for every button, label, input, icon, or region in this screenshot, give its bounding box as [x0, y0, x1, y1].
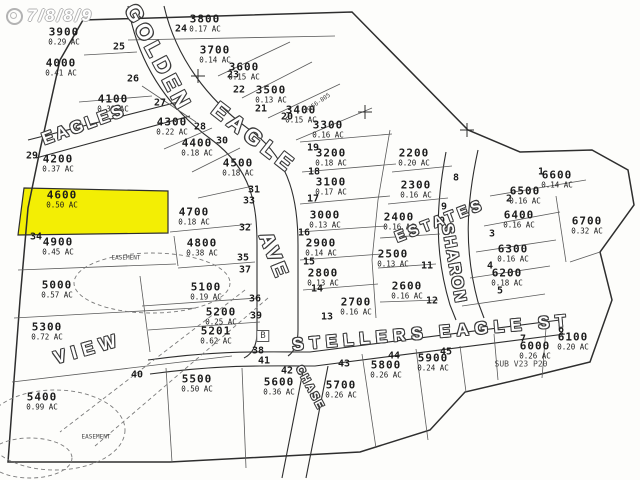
lot-5500-label: 55000.50 AC [181, 373, 213, 392]
lot-2200-label: 22000.20 AC [398, 147, 430, 166]
lot-acreage: 0.14 AC [199, 56, 231, 64]
lot-index-31: 31 [248, 185, 260, 196]
lot-acreage: 0.16 AC [400, 191, 432, 199]
lot-3200-label: 32000.18 AC [315, 147, 347, 166]
lot-index-5: 5 [497, 286, 503, 297]
lot-5800-label: 58000.26 AC [370, 359, 402, 378]
lot-number: 4400 [181, 137, 213, 149]
lot-number: 2500 [377, 248, 409, 260]
lot-number: 6600 [541, 169, 573, 181]
lot-index-25: 25 [113, 42, 125, 53]
lot-4300-label: 43000.22 AC [156, 116, 188, 135]
lot-number: 4900 [42, 236, 74, 248]
lot-number: 6300 [497, 243, 529, 255]
lot-2300-label: 23000.16 AC [400, 179, 432, 198]
lot-3000-label: 30000.13 AC [309, 209, 341, 228]
lot-acreage: 0.17 AC [189, 25, 221, 33]
lot-5000-label: 50000.57 AC [41, 279, 73, 298]
lot-acreage: 0.13 AC [309, 221, 341, 229]
lot-acreage: 0.18 AC [178, 218, 210, 226]
lot-acreage: 0.37 AC [42, 165, 74, 173]
lot-index-41: 41 [258, 356, 270, 367]
lot-index-3: 3 [489, 229, 495, 240]
lot-index-42: 42 [281, 366, 293, 377]
lot-index-39: 39 [250, 311, 262, 322]
lot-index-24: 24 [175, 24, 187, 35]
lot-acreage: 0.50 AC [181, 385, 213, 393]
lot-acreage: 0.57 AC [41, 291, 73, 299]
lot-index-15: 15 [303, 257, 315, 268]
lot-index-36: 36 [249, 294, 261, 305]
lot-3100-label: 31000.17 AC [315, 176, 347, 195]
lot-acreage: 0.16 AC [340, 308, 372, 316]
lot-number: 5600 [263, 376, 295, 388]
lot-3300-label: 33000.16 AC [312, 119, 344, 138]
lot-acreage: 0.41 AC [45, 69, 77, 77]
watermark: 7/8/8/9 [6, 6, 93, 26]
lot-acreage: 0.16 AC [391, 292, 423, 300]
lot-5700-label: 57000.26 AC [325, 379, 357, 398]
lot-acreage: 0.19 AC [190, 293, 222, 301]
lot-5100-label: 51000.19 AC [190, 281, 222, 300]
lot-acreage: 0.62 AC [200, 337, 232, 345]
lot-3700-label: 37000.14 AC [199, 44, 231, 63]
lot-index-4: 4 [487, 261, 493, 272]
lot-number: 3900 [48, 26, 80, 38]
lot-6600-label: 66000.14 AC [541, 169, 573, 188]
lot-number: 4500 [222, 157, 254, 169]
lot-number: 5300 [31, 321, 63, 333]
lot-index-32: 32 [239, 223, 251, 234]
lot-index-28: 28 [194, 122, 206, 133]
lot-acreage: 0.72 AC [31, 333, 63, 341]
lot-6200-label: 62000.18 AC [491, 267, 523, 286]
lot-4000-label: 40000.41 AC [45, 57, 77, 76]
lot-2900-label: 29000.14 AC [305, 237, 337, 256]
lot-index-19: 19 [307, 143, 319, 154]
lot-acreage: 0.22 AC [156, 128, 188, 136]
lot-acreage: 0.45 AC [42, 248, 74, 256]
lot-number: 5000 [41, 279, 73, 291]
lot-number: 2900 [305, 237, 337, 249]
lot-acreage: 0.32 AC [571, 227, 603, 235]
lot-3800-label: 38000.17 AC [189, 13, 221, 32]
lot-6500-label: 65000.16 AC [509, 185, 541, 204]
lot-number: 6500 [509, 185, 541, 197]
lot-index-18: 18 [308, 167, 320, 178]
lot-index-23: 23 [227, 70, 239, 81]
lot-index-34: 34 [30, 232, 42, 243]
lot-index-13: 13 [321, 312, 333, 323]
lot-number: 4000 [45, 57, 77, 69]
lot-4400-label: 44000.18 AC [181, 137, 213, 156]
lot-number: 3800 [189, 13, 221, 25]
lot-number: 6200 [491, 267, 523, 279]
lot-number: 4600 [46, 189, 78, 201]
easement-dashed-lines [0, 253, 268, 478]
lot-4200-label: 42000.37 AC [42, 153, 74, 172]
lot-index-11: 11 [421, 261, 433, 272]
lot-acreage: 0.29 AC [48, 38, 80, 46]
lot-5400-label: 54000.99 AC [26, 391, 58, 410]
lot-6300-label: 63000.16 AC [497, 243, 529, 262]
lot-number: 3000 [309, 209, 341, 221]
lot-acreage: 0.20 AC [557, 343, 589, 351]
lot-index-30: 30 [216, 136, 228, 147]
lot-number: 6700 [571, 215, 603, 227]
lot-3500-label: 35000.13 AC [255, 84, 287, 103]
lot-number: 3300 [312, 119, 344, 131]
lot-number: 2600 [391, 280, 423, 292]
lot-index-35: 35 [237, 253, 249, 264]
lot-acreage: 0.20 AC [398, 159, 430, 167]
lot-index-37: 37 [239, 265, 251, 276]
lot-5600-label: 56000.36 AC [263, 376, 295, 395]
lot-acreage: 0.16 AC [503, 221, 535, 229]
highlighted-lot-region [18, 188, 168, 235]
lot-index-8: 8 [453, 173, 459, 184]
lot-index-29: 29 [26, 151, 38, 162]
annotation-b: B [256, 330, 269, 342]
lot-4600-label: 46000.50 AC [46, 189, 78, 208]
lot-acreage: 0.24 AC [417, 364, 449, 372]
lot-number: 3100 [315, 176, 347, 188]
annotation-easement: EASEMENT [112, 255, 141, 262]
lot-number: 4200 [42, 153, 74, 165]
lot-number: 5400 [26, 391, 58, 403]
lot-acreage: 0.50 AC [46, 201, 78, 209]
lot-acreage: 0.99 AC [26, 403, 58, 411]
lot-4800-label: 48000.38 AC [186, 237, 218, 256]
lot-number: 3700 [199, 44, 231, 56]
lot-index-45: 45 [440, 347, 452, 358]
lot-acreage: 0.26 AC [325, 391, 357, 399]
lot-index-44: 44 [388, 351, 400, 362]
lot-number: 5200 [205, 306, 237, 318]
lot-5200-label: 52000.25 AC [205, 306, 237, 325]
lot-2700-label: 27000.16 AC [340, 296, 372, 315]
lot-5300-label: 53000.72 AC [31, 321, 63, 340]
lot-3900-label: 39000.29 AC [48, 26, 80, 45]
lot-4700-label: 47000.18 AC [178, 206, 210, 225]
lot-acreage: 0.18 AC [181, 149, 213, 157]
lot-4900-label: 49000.45 AC [42, 236, 74, 255]
lot-acreage: 0.16 AC [497, 255, 529, 263]
lot-index-12: 12 [426, 296, 438, 307]
annotation-easement: EASEMENT [82, 434, 111, 441]
lot-6400-label: 64000.16 AC [503, 209, 535, 228]
annotation-sub-v23-p20: SUB V23 P20 [495, 360, 548, 369]
lot-acreage: 0.13 AC [377, 260, 409, 268]
lot-number: 2200 [398, 147, 430, 159]
watermark-logo-icon [6, 8, 23, 25]
lot-acreage: 0.26 AC [370, 371, 402, 379]
lot-number: 6400 [503, 209, 535, 221]
lot-number: 5100 [190, 281, 222, 293]
lot-acreage: 0.18 AC [491, 279, 523, 287]
lot-2500-label: 25000.13 AC [377, 248, 409, 267]
lot-number: 4800 [186, 237, 218, 249]
lot-acreage: 0.38 AC [186, 249, 218, 257]
lot-5201-label: 52010.62 AC [200, 325, 232, 344]
lot-index-20: 20 [281, 112, 293, 123]
lot-index-22: 22 [233, 85, 245, 96]
lot-acreage: 0.16 AC [312, 131, 344, 139]
watermark-text: 7/8/8/9 [27, 6, 93, 26]
lot-index-26: 26 [127, 74, 139, 85]
lot-index-2: 2 [506, 194, 512, 205]
lot-acreage: 0.17 AC [315, 188, 347, 196]
lot-2600-label: 26000.16 AC [391, 280, 423, 299]
lot-index-16: 16 [298, 228, 310, 239]
lot-acreage: 0.18 AC [222, 169, 254, 177]
lot-number: 4700 [178, 206, 210, 218]
lot-acreage: 0.14 AC [541, 181, 573, 189]
lot-number: 4300 [156, 116, 188, 128]
lot-number: 2800 [307, 267, 339, 279]
lot-index-17: 17 [307, 194, 319, 205]
lot-index-21: 21 [255, 104, 267, 115]
lot-index-1: 1 [538, 167, 544, 178]
lot-number: 2300 [400, 179, 432, 191]
lot-4500-label: 45000.18 AC [222, 157, 254, 176]
lot-number: 5700 [325, 379, 357, 391]
lot-6700-label: 67000.32 AC [571, 215, 603, 234]
lot-index-14: 14 [311, 284, 323, 295]
lot-acreage: 0.36 AC [263, 388, 295, 396]
lot-number: 5500 [181, 373, 213, 385]
lot-number: 2700 [340, 296, 372, 308]
lot-number: 3200 [315, 147, 347, 159]
lot-number: 3500 [255, 84, 287, 96]
plat-map: 7/8/8/9 38000.17 AC39000.29 AC40000.41 A… [0, 0, 640, 480]
road-edges [28, 6, 565, 478]
lot-acreage: 0.16 AC [509, 197, 541, 205]
lot-number: 2400 [383, 211, 415, 223]
lot-index-33: 33 [243, 196, 255, 207]
lot-index-43: 43 [338, 359, 350, 370]
lot-index-40: 40 [131, 370, 143, 381]
lot-number: 5201 [200, 325, 232, 337]
